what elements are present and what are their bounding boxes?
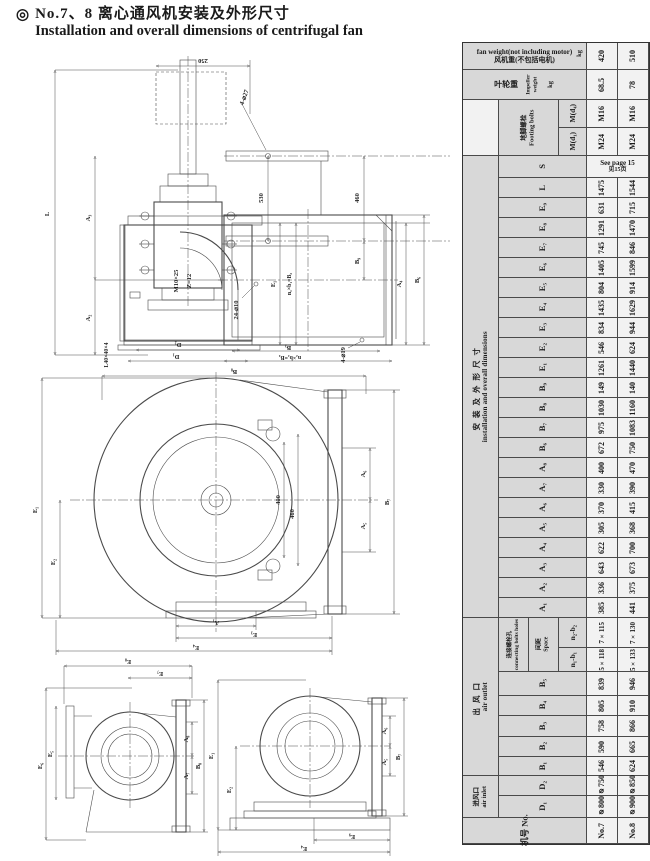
value-E₉-no8: 715 [618, 198, 649, 218]
drawing-front-view: B₈ E₁ E₂ 400 460 A₆ A₅ B₇ A₁ E₃ E₄ [30, 370, 420, 666]
rotated-text: 745 [598, 242, 606, 254]
row-label-L: L [499, 178, 587, 198]
rotated-text: ⌀850 [629, 775, 637, 796]
rotated-text: ⌀800 [598, 796, 606, 817]
rotated-block: 机号 No. [519, 815, 529, 847]
value-B₉-no7: 149 [587, 378, 618, 398]
row-label-A₂: A₂ [499, 578, 587, 598]
value-B₂-no7: 590 [587, 737, 618, 757]
rotated-text: 330 [598, 482, 606, 494]
rotated-text: 368 [629, 522, 637, 534]
rotated-text: 420 [598, 50, 606, 62]
dim-label: n₁×b₁=B₂ [287, 273, 293, 295]
rotated-text: 839 [598, 678, 606, 690]
dim-label: E₈ [125, 658, 131, 665]
value-B₅-no8: 946 [618, 672, 649, 696]
dim-label: 250 [198, 57, 208, 64]
rotated-line: air inlet [480, 786, 488, 808]
dim-label: A₅ [360, 523, 367, 530]
value-n2b2-no8: 7×130 [618, 618, 649, 648]
rotated-text: kg [577, 50, 584, 57]
rotated-text: M(d₁) [569, 132, 577, 151]
dim-label: E₃ [251, 631, 257, 638]
value-B₅-no7: 839 [587, 672, 618, 696]
fan-weight-header: fan weight(not including motor)风机重(不包括电机… [463, 43, 587, 70]
row-label-B₆: B₆ [499, 438, 587, 458]
rotated-block: 安装及外形尺寸installation and overall dimensio… [472, 331, 489, 442]
rotated-text: 390 [629, 482, 637, 494]
rotated-text: E₂ [538, 343, 547, 351]
value-A₄-no7: 622 [587, 538, 618, 558]
rotated-text: 700 [629, 542, 637, 554]
value-B₄-no7: 805 [587, 696, 618, 716]
dim-label: E₁ [32, 507, 39, 513]
value-Md4-no7: M16 [587, 100, 618, 128]
value-E₁-no7: 1261 [587, 358, 618, 378]
drawing-arrangement-left: E₈ E₇ E₆ E₅ A₈ A₇ B₈ [42, 660, 212, 856]
rotated-text: 415 [629, 502, 637, 514]
value-E₂-no8: 624 [618, 338, 649, 358]
drawing-side-view: L A₃ A₂ 250 4-⌀27 530 460 B₉ M10×25 Z=12… [28, 56, 458, 370]
value-D₂-no8: ⌀850 [618, 776, 649, 796]
value-A₂-no8: 375 [618, 578, 649, 598]
model-number-header: 机号 No. [463, 818, 587, 844]
rotated-text: M24 [598, 134, 606, 150]
fan-weight-zh: 风机重(不包括电机) [494, 56, 555, 64]
rotated-text: 149 [598, 382, 606, 394]
rotated-text: 622 [598, 542, 606, 554]
dim-label: A₁ [213, 619, 220, 626]
rotated-text: A₄ [538, 543, 547, 552]
value-D₂-no7: ⌀750 [587, 776, 618, 796]
group-blank [463, 100, 499, 156]
rotated-text: E₇ [538, 243, 547, 251]
rotated-text: A₅ [538, 523, 547, 532]
value-A₇-no8: 390 [618, 478, 649, 498]
rotated-text: 805 [598, 700, 606, 712]
dim-label: E₅ [47, 751, 54, 757]
rotated-text: 5×133 [630, 649, 637, 671]
rotated-text: A₂ [538, 583, 547, 592]
rotated-text: 546 [598, 342, 606, 354]
dim-label: 24-⌀10 [233, 300, 240, 319]
dim-label: A₇ [183, 773, 190, 780]
rotated-text: M16 [629, 106, 637, 122]
rotated-text: 1435 [598, 300, 606, 316]
space-header: 间距Space [529, 618, 559, 672]
arrangement-right-linework [218, 680, 408, 856]
rotated-text: 804 [598, 282, 606, 294]
page-title: No.7、8 离心通风机安装及外形尺寸 [35, 6, 363, 23]
rotated-text: 78 [629, 81, 637, 89]
row-label-E₆: E₆ [499, 258, 587, 278]
rotated-text: M16 [598, 106, 606, 122]
value-fan-weight-no8: 510 [618, 43, 649, 70]
value-E₈-no8: 1470 [618, 218, 649, 238]
rotated-text: 624 [629, 342, 637, 354]
rotated-text: 643 [598, 562, 606, 574]
rotated-text: E₄ [538, 303, 547, 311]
rotated-text: E₃ [538, 323, 547, 331]
row-label-A₈: A₈ [499, 458, 587, 478]
rotated-text: 1475 [598, 180, 606, 196]
row-label-B₁: B₁ [499, 757, 587, 776]
rotated-text: B₂ [538, 742, 547, 750]
section-bullet-icon: ◎ [16, 6, 29, 24]
value-E₃-no8: 944 [618, 318, 649, 338]
value-B₁-no7: 546 [587, 757, 618, 776]
connecting-bolts-header: 连接螺栓孔connecting bolts holes [499, 618, 529, 672]
value-impeller-no8: 78 [618, 70, 649, 100]
value-E₇-no8: 846 [618, 238, 649, 258]
rotated-text: 665 [629, 741, 637, 753]
rotated-text: 846 [629, 242, 637, 254]
rotated-block: 连接螺栓孔connecting bolts holes [507, 619, 520, 670]
side-view-linework [55, 56, 450, 361]
rotated-text: B₇ [538, 423, 547, 431]
row-label-E₉: E₉ [499, 198, 587, 218]
value-A₃-no8: 673 [618, 558, 649, 578]
rotated-text: 624 [629, 760, 637, 772]
rotated-text: 1544 [629, 180, 637, 196]
rotated-text: A₈ [538, 463, 547, 472]
rotated-text: A₁ [538, 603, 547, 612]
dim-label: E₉ [349, 833, 355, 840]
page-subtitle: Installation and overall dimensions of c… [35, 23, 363, 40]
dim-label: B₆ [414, 277, 421, 283]
row-label-B₄: B₄ [499, 696, 587, 716]
rotated-text: B₄ [538, 701, 547, 709]
value-E₁-no8: 1440 [618, 358, 649, 378]
value-L-no7: 1475 [587, 178, 618, 198]
value-L-no8: 1544 [618, 178, 649, 198]
dim-label: D₁ [173, 353, 180, 360]
rotated-text: 590 [598, 741, 606, 753]
rotated-text: kg [548, 81, 555, 88]
value-E₂-no7: 546 [587, 338, 618, 358]
rotated-text: A₆ [538, 503, 547, 512]
impeller-weight-header: 叶轮重Impellerweightkg [463, 70, 587, 100]
rotated-line: 地脚螺栓 [521, 109, 529, 145]
row-label-D₁: D₁ [499, 796, 587, 818]
rotated-text: n₂-b₂ [569, 625, 577, 640]
row-label-E₅: E₅ [499, 278, 587, 298]
dim-label: E₄ [301, 845, 307, 852]
value-B₄-no8: 910 [618, 696, 649, 716]
row-label-E₄: E₄ [499, 298, 587, 318]
rotated-text: E₈ [538, 223, 547, 231]
dim-label: E₆ [37, 763, 44, 769]
dim-label: B₇ [395, 754, 402, 760]
rotated-text: 672 [598, 442, 606, 454]
dim-label: E₂ [226, 787, 233, 793]
rotated-text: S [538, 164, 547, 169]
row-label-A₆: A₆ [499, 498, 587, 518]
impeller-weight-zh: 叶轮重 [494, 80, 518, 89]
dim-label: 400 [275, 495, 282, 505]
rotated-text: 336 [598, 582, 606, 594]
group-air-outlet: 出风口air outlet [463, 618, 499, 776]
footing-bolts-header: 地脚螺栓Footing bolts [499, 100, 559, 156]
rotated-text: 975 [598, 422, 606, 434]
rotated-text: 910 [629, 700, 637, 712]
rotated-text: E₉ [538, 203, 547, 211]
dim-label: A₃ [85, 215, 92, 222]
rotated-text: A₇ [538, 483, 547, 492]
dim-label: B₇ [384, 499, 391, 505]
rotated-text: E₅ [538, 283, 547, 291]
row-label-B₂: B₂ [499, 737, 587, 757]
rotated-block: 出风口air outlet [472, 678, 489, 716]
rotated-text: n₁-b₁ [569, 652, 577, 667]
value-model-no7: No.7 [587, 818, 618, 844]
rotated-text: 375 [629, 582, 637, 594]
dim-label: B₃ [285, 344, 291, 351]
dim-label: L [44, 211, 51, 216]
row-label-B₅: B₅ [499, 672, 587, 696]
see-page-en: See page 15 [600, 159, 635, 167]
row-label-E₈: E₈ [499, 218, 587, 238]
value-A₆-no7: 370 [587, 498, 618, 518]
rotated-line: 进风口 [473, 786, 481, 808]
value-E₉-no7: 631 [587, 198, 618, 218]
rotated-line: 安装及外形尺寸 [472, 331, 481, 442]
rotated-line: air outlet [481, 678, 489, 716]
value-E₆-no8: 1599 [618, 258, 649, 278]
row-label-B₉: B₉ [499, 378, 587, 398]
rotated-line: Impeller [526, 74, 533, 94]
value-E₈-no7: 1291 [587, 218, 618, 238]
dim-label: A₅ [381, 759, 388, 766]
rotated-text: 7×115 [599, 622, 606, 644]
value-E₅-no8: 914 [618, 278, 649, 298]
rotated-text: E₁ [538, 363, 547, 371]
rotated-text: M24 [629, 134, 637, 150]
catalog-page: { "page": { "bullet": "◎", "title_zh": "… [0, 0, 650, 861]
rotated-text: 1030 [598, 400, 606, 416]
rotated-text: 758 [598, 720, 606, 732]
rotated-line: 连接螺栓孔 [507, 619, 514, 670]
value-Md4-no8: M16 [618, 100, 649, 128]
row-label-B₇: B₇ [499, 418, 587, 438]
rotated-line: 出风口 [472, 678, 481, 716]
value-E₆-no7: 1405 [587, 258, 618, 278]
value-model-no8: No.8 [618, 818, 649, 844]
dim-label: D₂ [175, 341, 182, 348]
rotated-text: D₂ [538, 781, 547, 790]
row-label-n1b1: n₁-b₁ [559, 648, 587, 672]
rotated-line: weight [532, 74, 539, 94]
value-A₅-no8: 368 [618, 518, 649, 538]
dim-label: A₄ [396, 281, 403, 288]
row-label-A₁: A₁ [499, 598, 587, 618]
rotated-text: 631 [598, 202, 606, 214]
rotated-text: B₈ [538, 403, 547, 411]
value-B₇-no7: 975 [587, 418, 618, 438]
rotated-text: 914 [629, 282, 637, 294]
rotated-text: 441 [629, 602, 637, 614]
dim-label: n₂×b₂=B₄ [279, 354, 301, 360]
dim-label: A₂ [85, 315, 92, 322]
rotated-text: 715 [629, 202, 637, 214]
dim-label: E₄ [193, 644, 199, 651]
row-label-E₂: E₂ [499, 338, 587, 358]
dim-label: E₁ [270, 281, 277, 287]
dim-label: E₇ [157, 670, 163, 677]
group-air-inlet: 进风口air inlet [463, 776, 499, 818]
value-E₄-no7: 1435 [587, 298, 618, 318]
rotated-text: 1599 [629, 260, 637, 276]
front-view-linework [42, 372, 400, 655]
see-page-zh: 见15页 [608, 167, 626, 174]
dim-label: E₁ [208, 753, 215, 759]
row-label-Md1: M(d₁) [559, 128, 587, 156]
rotated-text: ⌀900 [629, 796, 637, 817]
row-label-B₈: B₈ [499, 398, 587, 418]
rotated-text: B₉ [538, 383, 547, 391]
dim-label: 460 [289, 509, 296, 519]
value-B₁-no8: 624 [618, 757, 649, 776]
value-E₇-no7: 745 [587, 238, 618, 258]
dim-label: 460 [354, 193, 361, 203]
row-label-n2b2: n₂-b₂ [559, 618, 587, 648]
rotated-line: 机号 No. [519, 815, 529, 847]
rotated-text: 68.5 [598, 78, 606, 92]
rotated-text: 1291 [598, 220, 606, 236]
dim-label: Z=12 [186, 274, 193, 289]
rotated-text: 1083 [629, 420, 637, 436]
rotated-text: 750 [629, 442, 637, 454]
title-text: No.7、8 离心通风机安装及外形尺寸 Installation and ove… [35, 6, 363, 41]
value-B₂-no8: 665 [618, 737, 649, 757]
value-A₅-no7: 305 [587, 518, 618, 538]
value-B₆-no8: 750 [618, 438, 649, 458]
value-A₃-no7: 643 [587, 558, 618, 578]
rotated-text: 944 [629, 322, 637, 334]
rotated-text: M(d₄) [569, 104, 577, 123]
rotated-text: B₃ [538, 722, 547, 730]
dim-label: E₂ [50, 559, 57, 565]
row-label-A₄: A₄ [499, 538, 587, 558]
value-A₇-no7: 330 [587, 478, 618, 498]
value-A₈-no8: 470 [618, 458, 649, 478]
rotated-line: Space [544, 637, 551, 652]
rotated-text: 385 [598, 602, 606, 614]
value-A₂-no7: 336 [587, 578, 618, 598]
rotated-text: 370 [598, 502, 606, 514]
value-A₄-no8: 700 [618, 538, 649, 558]
group-installation-dimensions: 安装及外形尺寸installation and overall dimensio… [463, 156, 499, 618]
value-n1b1-no7: 5×118 [587, 648, 618, 672]
value-B₃-no7: 758 [587, 716, 618, 737]
rotated-text: No.8 [629, 823, 637, 839]
rotated-text: 510 [629, 50, 637, 62]
rotated-block: 地脚螺栓Footing bolts [521, 109, 537, 145]
dim-label: 4-⌀19 [340, 346, 347, 363]
value-Md1-no8: M24 [618, 128, 649, 156]
dim-label: L40×40×4 [104, 342, 110, 367]
row-label-A₇: A₇ [499, 478, 587, 498]
rotated-text: No.7 [598, 823, 606, 839]
rotated-line: 间距 [536, 637, 543, 652]
value-B₈-no8: 1160 [618, 398, 649, 418]
dim-label: 4-⌀27 [239, 88, 251, 106]
row-label-A₃: A₃ [499, 558, 587, 578]
value-D₁-no7: ⌀800 [587, 796, 618, 818]
value-A₁-no8: 441 [618, 598, 649, 618]
value-E₄-no8: 1629 [618, 298, 649, 318]
value-B₉-no8: 140 [618, 378, 649, 398]
rotated-text: ⌀750 [598, 775, 606, 796]
row-label-B₃: B₃ [499, 716, 587, 737]
row-label-D₂: D₂ [499, 776, 587, 796]
dim-label: B₉ [354, 258, 361, 264]
rotated-text: 470 [629, 462, 637, 474]
rotated-text: 546 [598, 760, 606, 772]
rotated-text: B₆ [538, 443, 547, 451]
dim-label: B₈ [231, 368, 237, 375]
row-label-Md4: M(d₄) [559, 100, 587, 128]
value-B₃-no8: 866 [618, 716, 649, 737]
rotated-text: 866 [629, 720, 637, 732]
rotated-text: 1261 [598, 360, 606, 376]
rotated-text: 1629 [629, 300, 637, 316]
value-n1b1-no8: 5×133 [618, 648, 649, 672]
rotated-block: 进风口air inlet [473, 786, 489, 808]
value-impeller-no7: 68.5 [587, 70, 618, 100]
rotated-text: 834 [598, 322, 606, 334]
rotated-block: 间距Space [536, 637, 550, 652]
value-B₇-no8: 1083 [618, 418, 649, 438]
value-E₃-no7: 834 [587, 318, 618, 338]
value-Md1-no7: M24 [587, 128, 618, 156]
value-fan-weight-no7: 420 [587, 43, 618, 70]
dim-label: M10×25 [173, 269, 180, 293]
value-B₆-no7: 672 [587, 438, 618, 458]
dim-label: A₈ [183, 736, 190, 743]
rotated-text: B₅ [538, 679, 547, 687]
dimensions-table: fan weight(not including motor)风机重(不包括电机… [462, 42, 650, 845]
value-E₅-no7: 804 [587, 278, 618, 298]
value-n2b2-no7: 7×115 [587, 618, 618, 648]
arrangement-left-linework [46, 666, 208, 840]
value-D₁-no8: ⌀900 [618, 796, 649, 818]
rotated-text: 1470 [629, 220, 637, 236]
rotated-text: 7×130 [630, 622, 637, 644]
row-label-S: S [499, 156, 587, 178]
rotated-text: 305 [598, 522, 606, 534]
row-label-E₇: E₇ [499, 238, 587, 258]
dim-label: B₈ [195, 763, 202, 769]
rotated-text: 1405 [598, 260, 606, 276]
rotated-text: 1160 [629, 400, 637, 416]
rotated-text: 5×118 [599, 649, 606, 671]
value-A₆-no8: 415 [618, 498, 649, 518]
value-B₈-no7: 1030 [587, 398, 618, 418]
value-A₁-no7: 385 [587, 598, 618, 618]
rotated-text: 400 [598, 462, 606, 474]
rotated-text: A₃ [538, 563, 547, 572]
rotated-text: 673 [629, 562, 637, 574]
rotated-text: L [538, 185, 547, 191]
rotated-line: connecting bolts holes [514, 619, 521, 670]
rotated-text: D₁ [538, 802, 547, 811]
dim-label: A₆ [381, 728, 388, 735]
rotated-text: 946 [629, 678, 637, 690]
row-label-E₁: E₁ [499, 358, 587, 378]
value-S-merged: See page 15见15页 [587, 156, 649, 178]
rotated-text: 140 [629, 382, 637, 394]
